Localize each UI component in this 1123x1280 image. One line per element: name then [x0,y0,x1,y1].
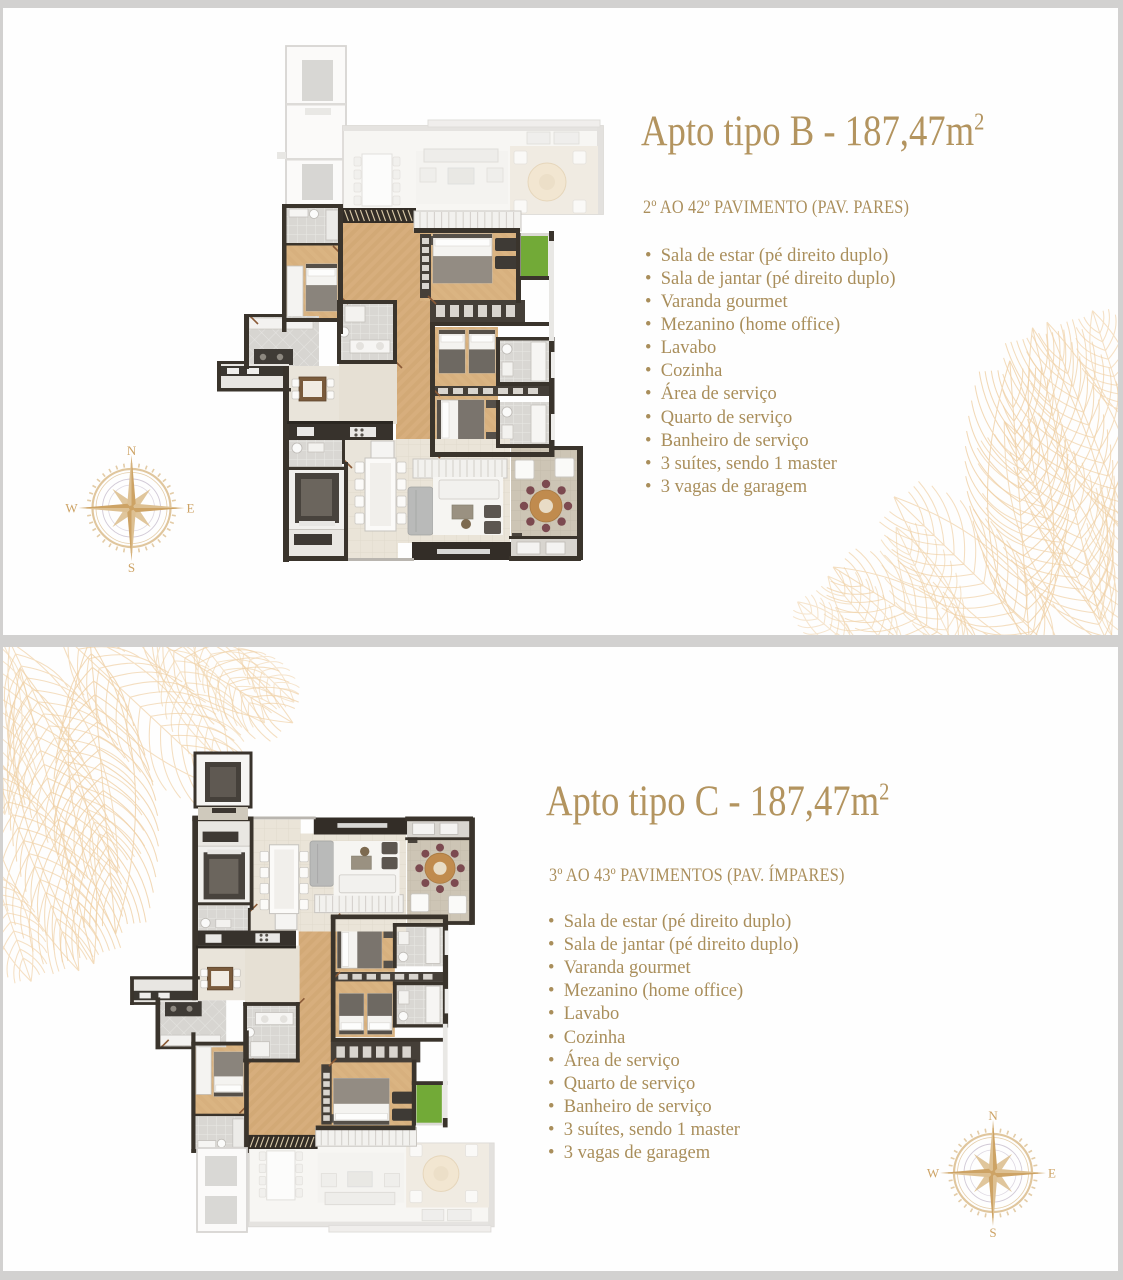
svg-text:S: S [128,560,135,575]
svg-text:S: S [989,1225,996,1240]
svg-text:E: E [1048,1166,1056,1181]
svg-text:W: W [927,1166,940,1181]
svg-text:N: N [988,1108,998,1123]
svg-text:N: N [127,443,137,458]
svg-text:E: E [187,501,195,516]
svg-text:W: W [65,501,78,516]
